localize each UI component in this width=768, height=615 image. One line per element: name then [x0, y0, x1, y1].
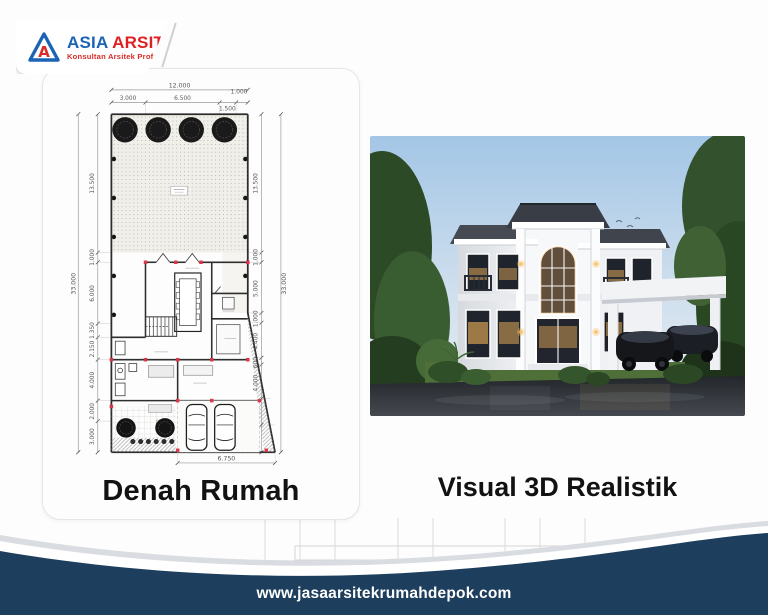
dim-right-seg-3: 5.000	[254, 280, 260, 297]
dim-right-total: 33.000	[281, 273, 288, 295]
floor-plan-title: Denah Rumah	[43, 475, 359, 508]
visual-3d-title: Visual 3D Realistik	[370, 472, 745, 503]
dim-left-seg-7: 2.000	[90, 403, 96, 420]
dim-left-seg-5: 2.150	[90, 340, 96, 357]
dim-left-seg-6: 4.000	[90, 372, 96, 389]
brand-name-first: ASIA	[67, 33, 108, 52]
brand-logo: A ASIA ARSITEK Konsultan Arsitek Profesi…	[16, 20, 184, 74]
dim-left-seg-2: 1.000	[90, 249, 96, 266]
plan-dim-top: 12.000 3.000 6.500 1.500 1.000	[109, 82, 249, 114]
car	[215, 405, 235, 451]
house-3d-render	[370, 136, 745, 416]
dim-right-seg-1: 13.500	[254, 173, 260, 194]
dim-top-total: 12.000	[169, 82, 191, 89]
front-garden	[111, 405, 175, 453]
garden-label	[171, 186, 188, 195]
svg-text:A: A	[38, 43, 50, 61]
dim-right-seg-4: 1.000	[254, 310, 260, 327]
dim-top-seg-3: 1.500	[219, 106, 236, 112]
stairs	[145, 317, 176, 336]
plan-dim-left: 33.000 13.500 1.000 6.000	[70, 112, 111, 454]
flyer-page: A ASIA ARSITEK Konsultan Arsitek Profesi…	[0, 0, 768, 615]
dim-left-seg-3: 6.000	[90, 285, 96, 302]
dim-right-seg-2: 1.000	[254, 249, 260, 266]
dim-left-seg-8: 3.000	[90, 428, 96, 445]
visual-3d-panel	[370, 136, 745, 416]
dining-table	[175, 273, 201, 331]
triangle-a-icon: A	[28, 31, 60, 63]
brand-tagline: Konsultan Arsitek Profesional	[67, 53, 188, 61]
dim-bottom: 6.750	[217, 456, 235, 463]
dim-left-total: 33.000	[70, 273, 77, 295]
car	[186, 405, 206, 451]
website-url: www.jasaarsitekrumahdepok.com	[0, 585, 768, 603]
dim-top-seg-1: 3.000	[120, 96, 137, 102]
brand-name-second: ARSITEK	[112, 33, 188, 52]
floor-plan-drawing: 12.000 3.000 6.500 1.500 1.000	[51, 75, 353, 471]
dim-left-seg-1: 13.500	[90, 173, 96, 194]
dim-left-seg-4: 1.350	[90, 322, 96, 339]
dim-top-seg-4: 1.000	[231, 90, 248, 96]
floor-plan-card: 12.000 3.000 6.500 1.500 1.000	[42, 68, 360, 520]
plan-dim-bottom: 6.750	[176, 452, 277, 465]
dim-top-seg-2: 6.500	[174, 96, 191, 102]
carport	[178, 401, 260, 453]
